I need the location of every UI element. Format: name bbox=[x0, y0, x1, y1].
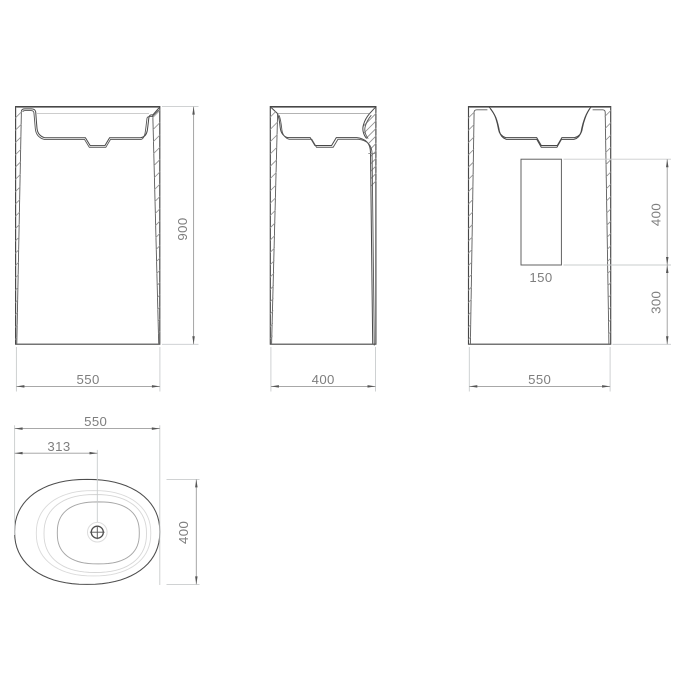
svg-text:400: 400 bbox=[312, 372, 335, 387]
svg-text:900: 900 bbox=[175, 217, 190, 240]
svg-text:150: 150 bbox=[529, 270, 552, 285]
svg-text:400: 400 bbox=[176, 521, 191, 544]
svg-text:550: 550 bbox=[528, 372, 551, 387]
svg-text:313: 313 bbox=[47, 439, 70, 454]
svg-text:550: 550 bbox=[76, 372, 99, 387]
svg-text:550: 550 bbox=[84, 414, 107, 429]
svg-text:400: 400 bbox=[648, 203, 663, 226]
svg-text:300: 300 bbox=[648, 291, 663, 314]
